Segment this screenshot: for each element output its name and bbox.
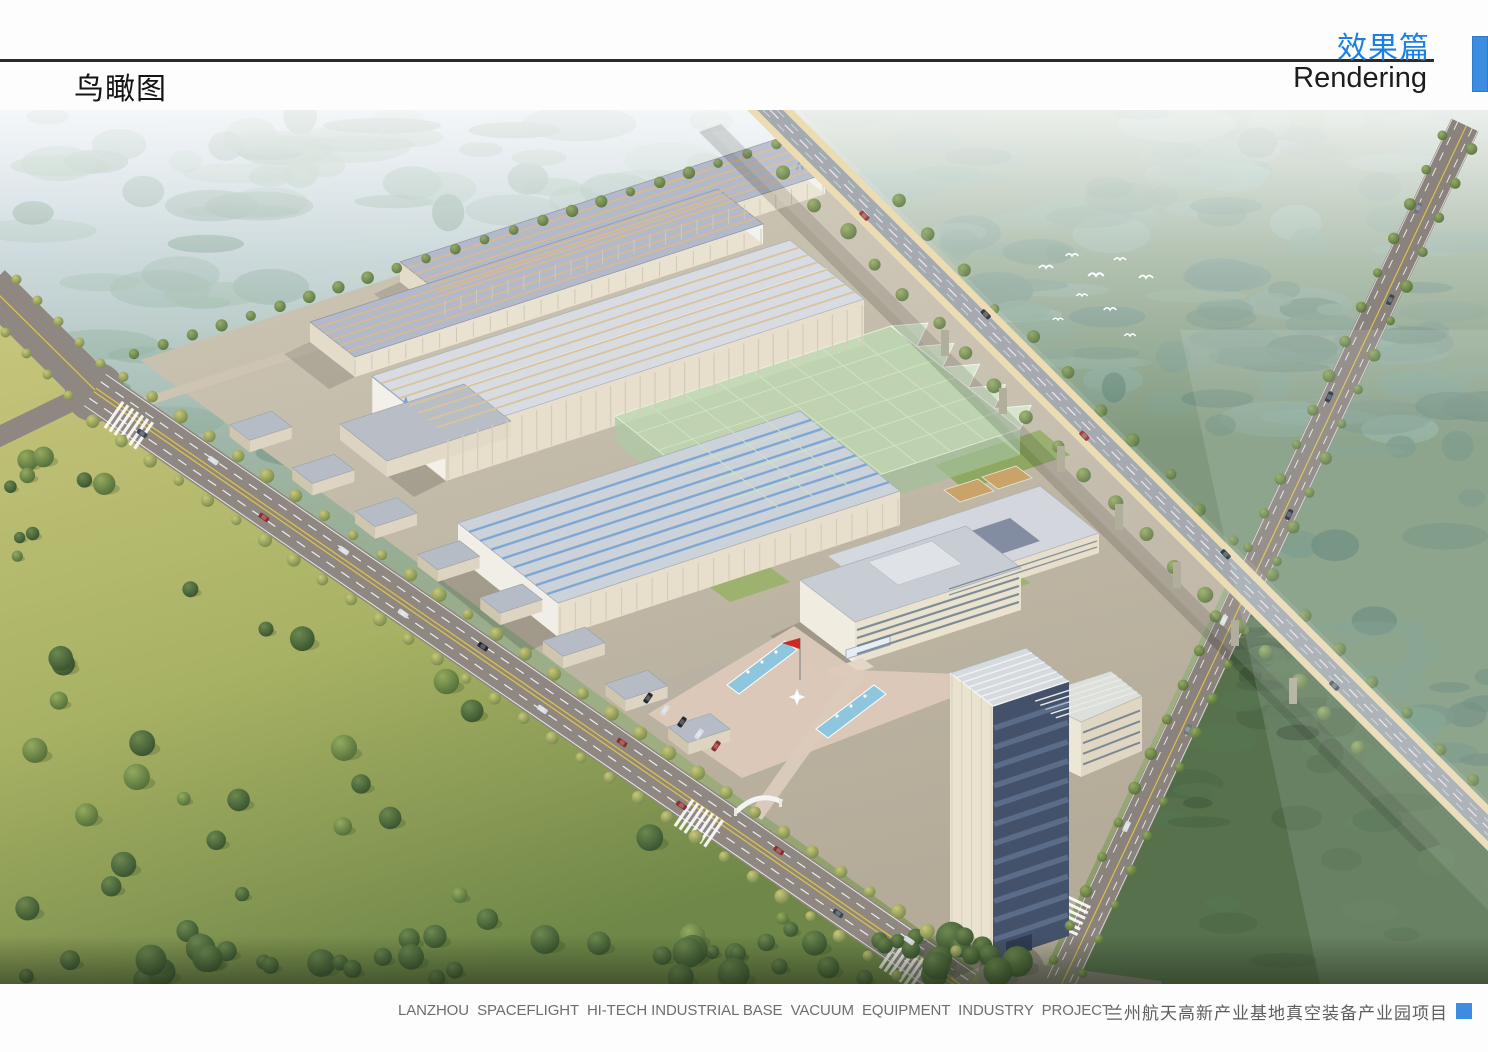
header-rule [0,59,1434,62]
page-title: 鸟瞰图 [74,64,167,108]
presentation-page: 鸟瞰图 效果篇 Rendering [0,0,1488,1052]
footer-caption-en: LANZHOU SPACEFLIGHT HI-TECH INDUSTRIAL B… [398,1002,1111,1019]
aerial-rendering [0,110,1488,984]
section-title-en: Rendering [1293,62,1427,95]
bottom-vignette [0,936,1488,984]
section-title-zh: 效果篇 [1337,23,1430,67]
footer-caption-zh: 兰州航天高新产业基地真空装备产业园项目 [1106,999,1448,1024]
accent-block-icon [1472,36,1488,92]
footer-marker-icon [1456,1003,1472,1019]
aerial-rendering-scene [0,110,1488,984]
page-footer: LANZHOU SPACEFLIGHT HI-TECH INDUSTRIAL B… [0,996,1488,1030]
